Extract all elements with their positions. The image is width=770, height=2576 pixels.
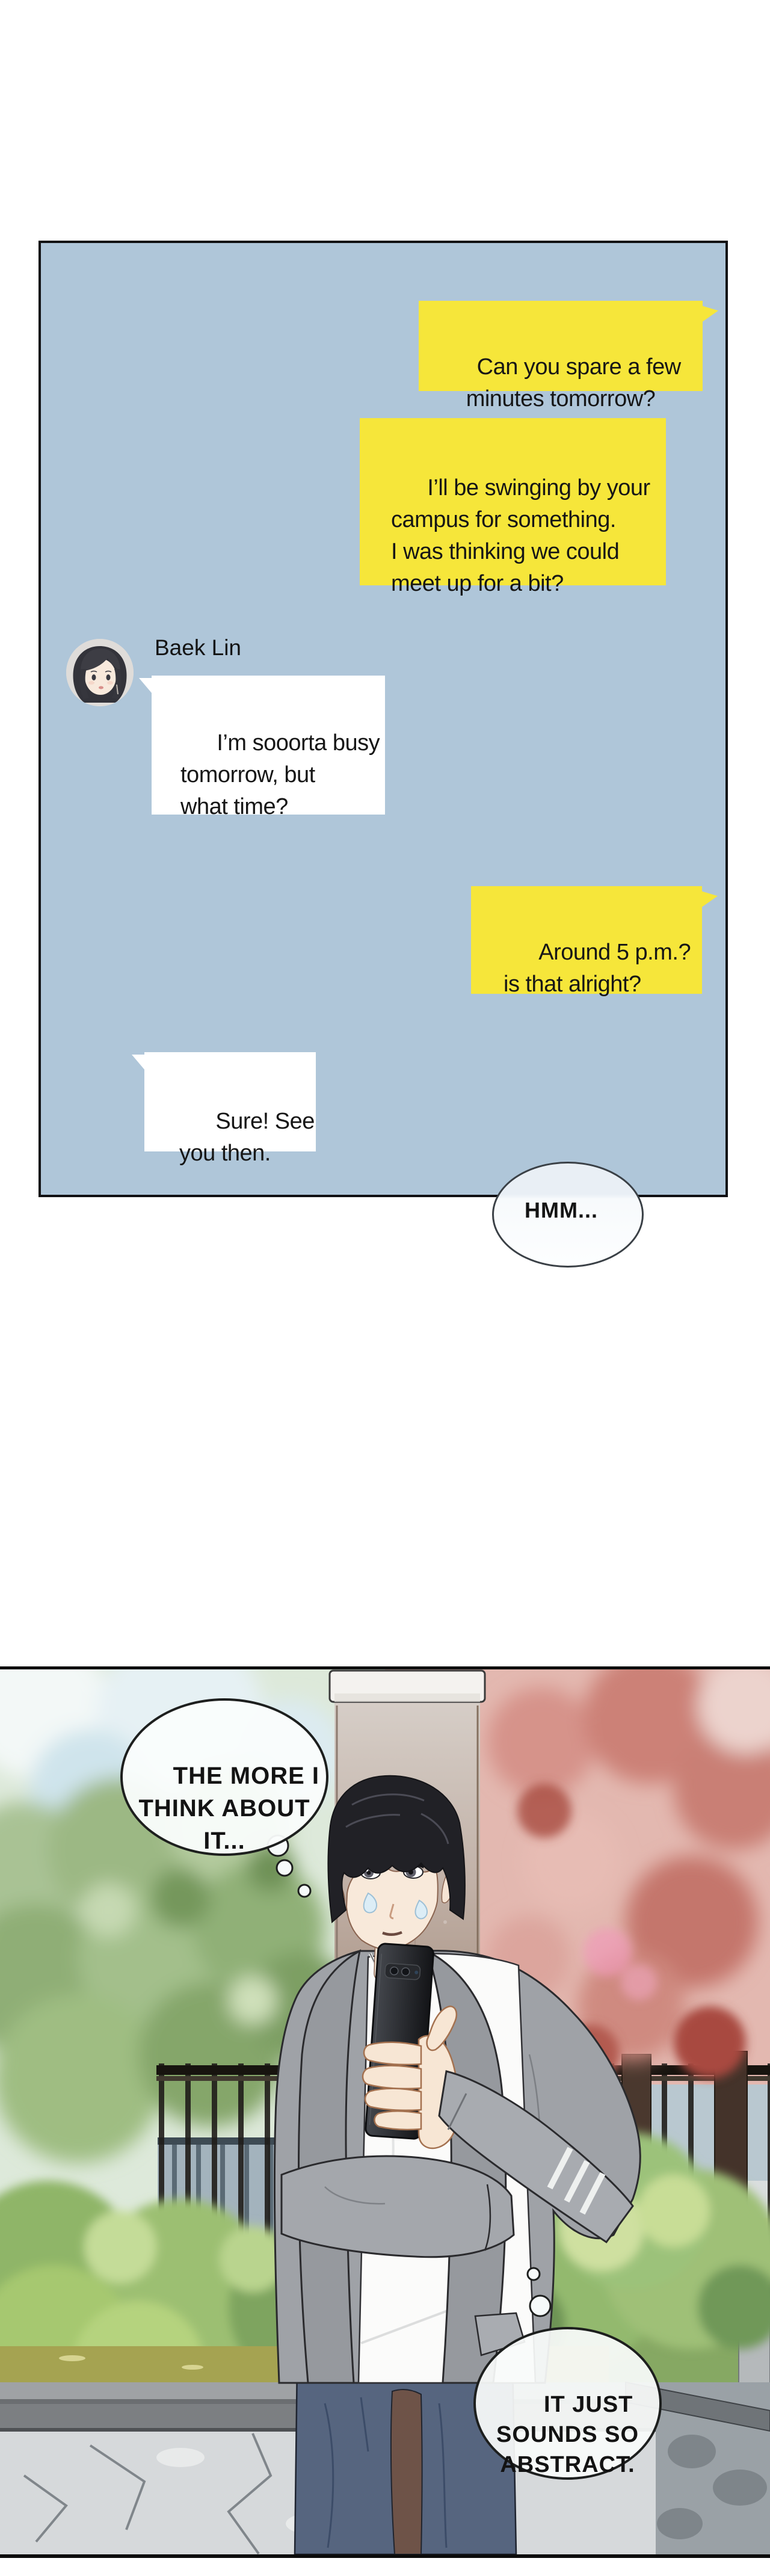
- webtoon-page: Can you spare a few minutes tomorrow? I’…: [0, 0, 770, 2576]
- chat-bubble-sent-3: Around 5 p.m.? is that alright?: [471, 886, 702, 994]
- thought-text: IT JUST SOUNDS SO ABSTRACT.: [496, 2392, 639, 2477]
- reaction-text: HMM...: [525, 1198, 598, 1223]
- comic-panel: THE MORE I THINK ABOUT IT... IT JUST SOU…: [0, 1666, 770, 2558]
- chat-panel: Can you spare a few minutes tomorrow? I’…: [38, 241, 728, 1197]
- chat-bubble-sent-1: Can you spare a few minutes tomorrow?: [419, 301, 703, 391]
- avatar: [66, 639, 134, 706]
- avatar-image: [66, 639, 134, 706]
- chat-bubble-received-2: Sure! See you then.: [144, 1052, 316, 1151]
- chat-bubble-text: Can you spare a few minutes tomorrow?: [466, 354, 681, 411]
- chat-bubble-text: I’ll be swinging by your campus for some…: [391, 475, 650, 596]
- chat-bubble-received-1: I’m sooorta busy tomorrow, but what time…: [152, 676, 385, 815]
- chat-bubble-text: Sure! See you then.: [179, 1109, 315, 1166]
- thought-bubble-2: IT JUST SOUNDS SO ABSTRACT.: [473, 2327, 662, 2480]
- chat-bubble-text: I’m sooorta busy tomorrow, but what time…: [180, 730, 380, 819]
- reaction-bubble: HMM...: [492, 1162, 644, 1268]
- chat-bubble-text: Around 5 p.m.? is that alright?: [504, 940, 691, 997]
- thought-bubble-1: THE MORE I THINK ABOUT IT...: [120, 1698, 328, 1856]
- contact-name: Baek Lin: [155, 635, 241, 661]
- chat-bubble-sent-2: I’ll be swinging by your campus for some…: [360, 418, 666, 585]
